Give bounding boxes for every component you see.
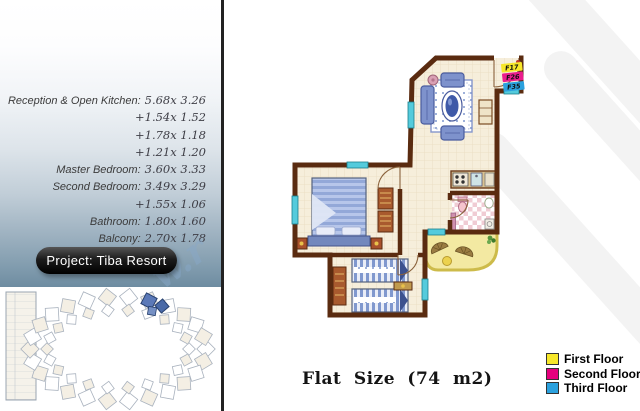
legend-item: Second Floor bbox=[546, 367, 640, 381]
balcony-group bbox=[425, 232, 497, 270]
project-badge: Project: Tiba Resort bbox=[36, 247, 177, 274]
dimension-row: +1.55x 1.06 bbox=[0, 197, 206, 214]
sidebar-divider bbox=[221, 0, 224, 411]
balcony-door bbox=[428, 229, 445, 235]
legend-label: Second Floor bbox=[564, 367, 640, 381]
wash-basin bbox=[485, 198, 493, 208]
unit-label-chips: F17 F26 F35 bbox=[501, 62, 525, 92]
dimension-label: Bathroom: bbox=[90, 216, 141, 228]
legend-swatch-third-floor bbox=[546, 382, 559, 394]
dimension-value: 3.60x 3.33 bbox=[145, 162, 206, 176]
sidebar: Reception & Open Kitchen: 5.68x 3.26 +1.… bbox=[0, 0, 222, 287]
pillow bbox=[316, 227, 335, 235]
site-plan-svg bbox=[0, 287, 222, 411]
dimension-row: +1.78x 1.18 bbox=[0, 128, 206, 145]
toilet bbox=[459, 202, 467, 212]
dimension-value: 3.49x 3.29 bbox=[145, 179, 206, 193]
dimension-value: 1.80x 1.60 bbox=[145, 214, 206, 228]
headboard bbox=[308, 236, 370, 246]
dimension-list: Reception & Open Kitchen: 5.68x 3.26 +1.… bbox=[0, 93, 206, 249]
balcony-pot bbox=[443, 257, 452, 266]
window bbox=[408, 102, 414, 128]
site-plan bbox=[0, 287, 222, 411]
washer bbox=[485, 219, 494, 229]
flat-size-label: Flat Size (74 m2) bbox=[302, 369, 492, 389]
dimension-row: Second Bedroom: 3.49x 3.29 bbox=[0, 179, 206, 196]
pillow bbox=[342, 227, 361, 235]
unit-label: F26 bbox=[506, 73, 521, 82]
dimension-value: +1.54x 1.52 bbox=[135, 110, 206, 124]
window bbox=[422, 279, 428, 300]
stove bbox=[453, 173, 468, 186]
dimension-value: +1.21x 1.20 bbox=[135, 145, 206, 159]
site-plan-units bbox=[21, 288, 215, 409]
unit-label: F35 bbox=[507, 82, 522, 91]
floor-plan: F17 F26 F35 bbox=[280, 25, 560, 345]
legend-label: First Floor bbox=[564, 352, 623, 366]
legend-item: Third Floor bbox=[546, 381, 640, 395]
floor-legend: First Floor Second Floor Third Floor bbox=[546, 352, 640, 396]
toilet-tank bbox=[458, 197, 467, 202]
wardrobe bbox=[333, 267, 346, 305]
dimension-row: +1.54x 1.52 bbox=[0, 110, 206, 127]
dimension-value: +1.55x 1.06 bbox=[135, 197, 206, 211]
dimension-row: +1.21x 1.20 bbox=[0, 145, 206, 162]
dimension-label: Master Bedroom: bbox=[56, 164, 140, 176]
dimension-label: Second Bedroom: bbox=[53, 181, 141, 193]
dimension-row: Reception & Open Kitchen: 5.68x 3.26 bbox=[0, 93, 206, 110]
brochure-page: F17 F26 F35 Reception & Open Kitchen: 5.… bbox=[0, 0, 640, 411]
entry-cabinet bbox=[479, 100, 492, 124]
kitchen-counter bbox=[451, 171, 496, 188]
dimension-label: Reception & Open Kitchen: bbox=[8, 95, 141, 107]
window bbox=[347, 162, 368, 168]
dimension-label: Balcony: bbox=[98, 233, 140, 245]
legend-swatch-second-floor bbox=[546, 368, 559, 380]
legend-label: Third Floor bbox=[564, 381, 627, 395]
legend-item: First Floor bbox=[546, 352, 640, 366]
dimension-row: Master Bedroom: 3.60x 3.33 bbox=[0, 162, 206, 179]
dimension-row: Bathroom: 1.80x 1.60 bbox=[0, 214, 206, 231]
dimension-value: 2.70x 1.78 bbox=[145, 231, 206, 245]
dimension-value: 5.68x 3.26 bbox=[145, 93, 206, 107]
legend-swatch-first-floor bbox=[546, 353, 559, 365]
window bbox=[292, 196, 298, 224]
fridge bbox=[485, 173, 494, 186]
dimension-value: +1.78x 1.18 bbox=[135, 128, 206, 142]
unit-label: F17 bbox=[505, 63, 520, 72]
